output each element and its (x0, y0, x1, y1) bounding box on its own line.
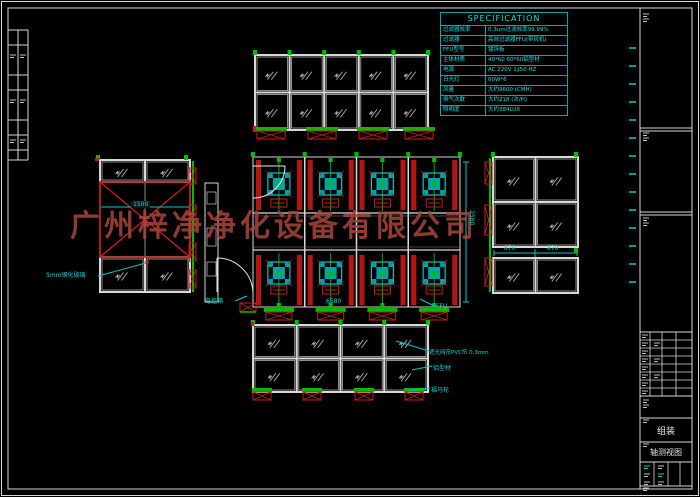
spec-row-value: 0.3um过滤效率99.99% (486, 26, 567, 35)
spec-row-label: 主体材质 (441, 56, 486, 65)
spec-row-value: 大约384LUX (486, 106, 567, 115)
titleblock-assembly-label: 组装 (641, 424, 691, 437)
spec-row: 日光灯60W*6 (441, 76, 567, 86)
spec-row-label: 风量 (441, 86, 486, 95)
spec-row-label: 日光灯 (441, 76, 486, 85)
spec-table-rows: 过滤器效率0.3um过滤效率99.99%过滤器高效过滤器FFU(带风机)FFU型… (441, 26, 567, 115)
spec-row-label: 过滤器 (441, 36, 486, 45)
dimension-right-panel-b: 870 (547, 245, 558, 252)
bottom-elevation-panel (251, 320, 432, 400)
spec-row-value: AC 220V 1∮50 HZ (486, 66, 567, 75)
dimension-plan-height: 2580 (468, 210, 475, 225)
dimension-left-panel: 1500 (131, 201, 150, 208)
spec-row-value: 大约218 (次/H) (486, 96, 567, 105)
spec-row-value: 40*60 60*60铝型材 (486, 56, 567, 65)
dimension-plan-width: 6580 (326, 298, 341, 305)
spec-row-value: 高效过滤器FFU(带风机) (486, 36, 567, 45)
spec-table-title: SPECIFICATION (441, 13, 567, 26)
spec-row: 电源AC 220V 1∮50 HZ (441, 66, 567, 76)
spec-row: 过滤器效率0.3um过滤效率99.99% (441, 26, 567, 36)
callout-tempered-glass: 5mm钢化玻璃 (46, 270, 86, 279)
spec-table: SPECIFICATION 过滤器效率0.3um过滤效率99.99%过滤器高效过… (440, 12, 568, 116)
spec-row: 风量大约9600 (CMH) (441, 86, 567, 96)
spec-row: 照明度大约384LUX (441, 106, 567, 115)
spec-row: 换气次数大约218 (次/H) (441, 96, 567, 106)
spec-row-label: FFU型号 (441, 46, 486, 55)
spec-row-value: 镀锌板 (486, 46, 567, 55)
spec-row-label: 过滤器效率 (441, 26, 486, 35)
spec-row-label: 电源 (441, 66, 486, 75)
spec-row-value: 大约9600 (CMH) (486, 86, 567, 95)
callout-aluminum-profile: 铝型材 (433, 363, 451, 372)
callout-ffu: FFU (436, 303, 447, 310)
title-block (629, 8, 692, 491)
drawing-linework (0, 0, 700, 497)
top-elevation-panel (253, 50, 435, 139)
titleblock-view-name: 轴测视图 (641, 447, 691, 458)
spec-row: FFU型号镀锌板 (441, 46, 567, 56)
spec-row-value: 60W*6 (486, 76, 567, 85)
cad-drawing-canvas: 广州梓净净化设备有限公司 SPECIFICATION 过滤器效率0.3um过滤效… (0, 0, 700, 497)
spec-row-label: 照明度 (441, 106, 486, 115)
callout-caster: 福马轮 (431, 385, 449, 394)
dimension-right-panel-a: 870 (504, 245, 515, 252)
spec-row-label: 换气次数 (441, 96, 486, 105)
spec-row: 主体材质40*60 60*60铝型材 (441, 56, 567, 66)
callout-shade-net: 遮光网帘PVC帘 0.3mm (429, 348, 489, 356)
callout-control-box: 电控箱 (205, 296, 223, 305)
spec-row: 过滤器高效过滤器FFU(带风机) (441, 36, 567, 46)
